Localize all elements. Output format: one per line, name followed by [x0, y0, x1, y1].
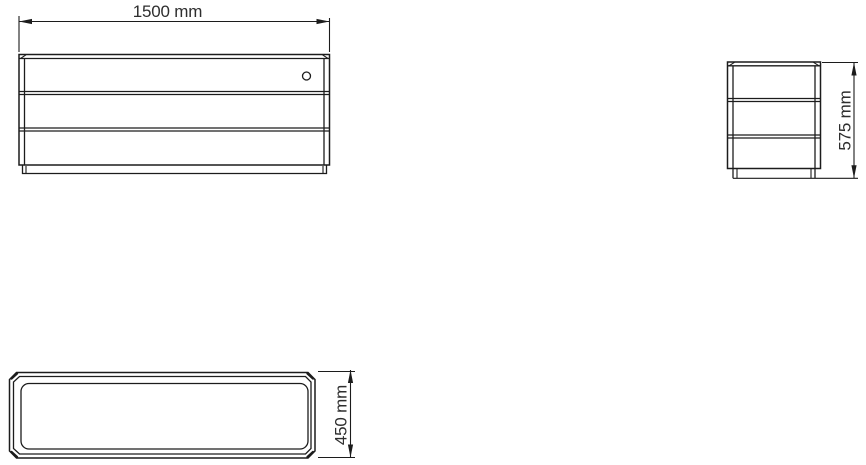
- front-width-dimension-label: 1500 mm: [133, 2, 203, 21]
- keyhole-icon: [303, 72, 311, 80]
- front-cabinet-outline: [19, 55, 330, 174]
- drawing-canvas: 1500 mm: [0, 0, 866, 465]
- side-height-dimension-label: 575 mm: [836, 90, 855, 150]
- top-view: 450 mm: [10, 370, 356, 458]
- cabinet-side-outline: [728, 62, 821, 169]
- arrowhead-right-icon: [317, 19, 330, 24]
- arrowhead-down-icon: [348, 445, 353, 458]
- arrowhead-left-icon: [19, 19, 32, 24]
- top-depth-dimension: 450 mm: [318, 370, 355, 458]
- technical-drawing-page: 1500 mm: [0, 0, 866, 465]
- top-rim-outline: [14, 377, 312, 455]
- arrowhead-up-icon: [851, 63, 856, 76]
- top-outer-outline: [10, 373, 316, 459]
- side-view: 575 mm: [728, 62, 859, 178]
- top-depth-dimension-label: 450 mm: [332, 385, 351, 445]
- side-height-dimension: 575 mm: [733, 63, 858, 179]
- top-panel-inner-outline: [21, 384, 308, 450]
- front-width-dimension: 1500 mm: [19, 2, 330, 52]
- cabinet-body-outline: [19, 55, 330, 166]
- front-view: 1500 mm: [19, 2, 330, 174]
- plinth-base-outline: [23, 165, 327, 174]
- top-view-outline: [10, 373, 316, 459]
- side-cabinet-outline: [728, 62, 821, 178]
- arrowhead-down-icon: [851, 165, 856, 178]
